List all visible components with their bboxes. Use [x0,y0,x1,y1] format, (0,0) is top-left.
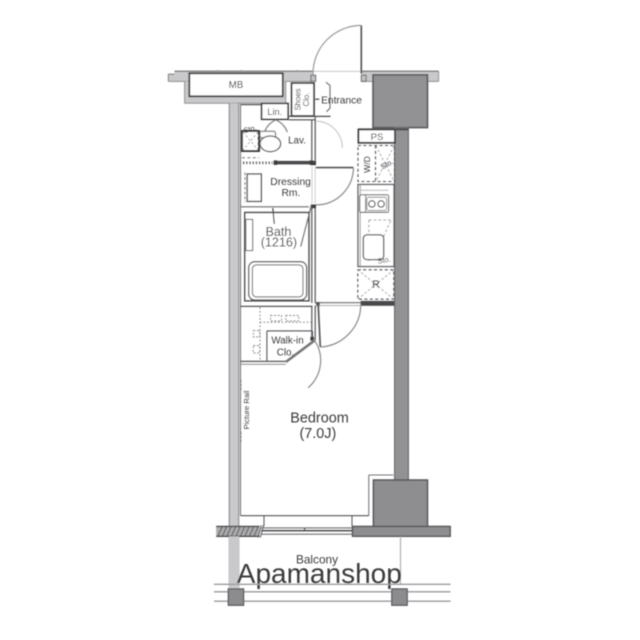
svg-text:R: R [372,280,379,291]
svg-text:Entrance: Entrance [321,95,362,106]
svg-text:Lav.: Lav. [288,136,306,147]
svg-text:PS: PS [371,132,384,143]
svg-text:(1216): (1216) [261,236,297,250]
svg-text:Picture Rail: Picture Rail [242,390,251,429]
svg-text:Walk-in: Walk-in [271,336,303,347]
svg-text:Clo.: Clo. [302,93,311,107]
svg-text:Rm.: Rm. [281,188,300,199]
svg-text:W/D: W/D [362,156,372,173]
svg-text:Dressing: Dressing [270,177,311,188]
svg-text:Lin.: Lin. [267,107,282,117]
svg-text:Bedroom: Bedroom [290,410,348,426]
svg-text:− − −: − − − [238,431,243,442]
svg-text:MB: MB [229,80,244,91]
svg-text:(7.0J): (7.0J) [300,426,337,442]
svg-text:− − −: − − − [238,379,243,390]
svg-text:Shoes: Shoes [293,88,302,110]
